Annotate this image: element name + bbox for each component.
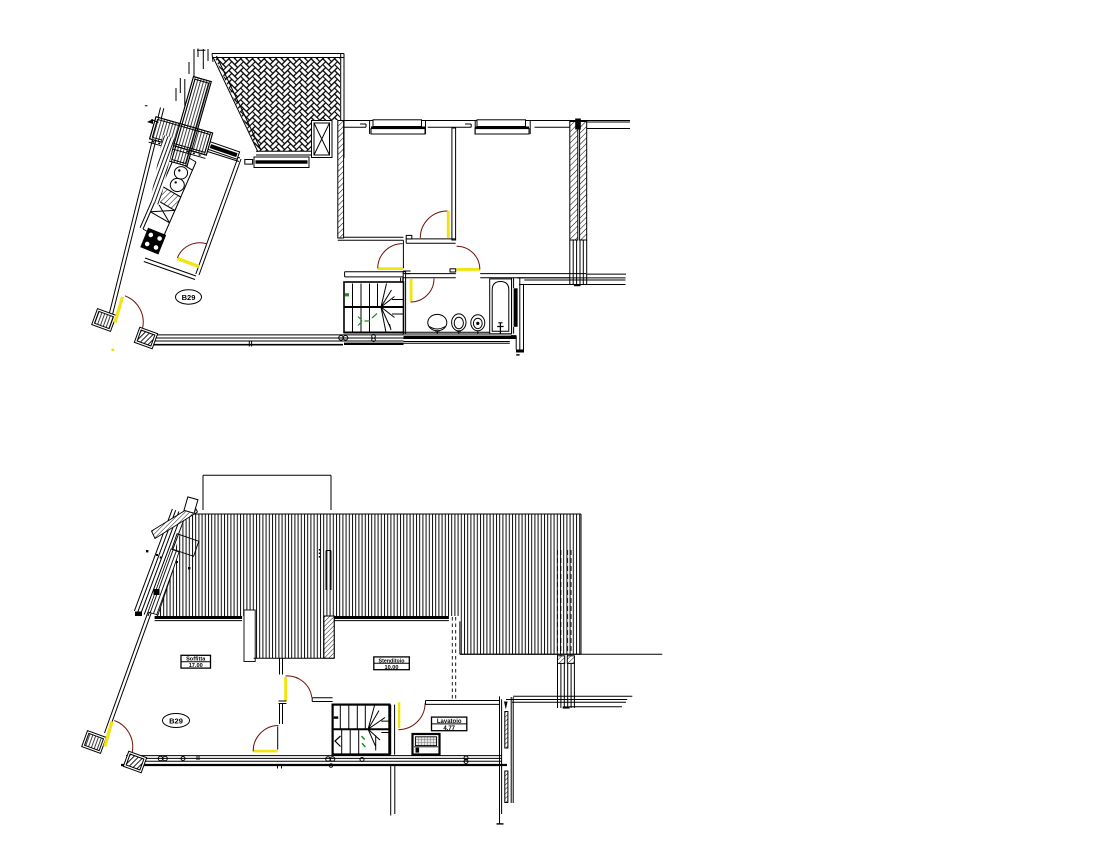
svg-text:17.00: 17.00 (189, 663, 203, 669)
svg-text:B29: B29 (182, 293, 196, 302)
svg-text:Stenditoio: Stenditoio (379, 658, 406, 664)
svg-text:10.00: 10.00 (385, 665, 399, 671)
svg-text:Soffitta: Soffitta (186, 657, 206, 663)
svg-text:4.77: 4.77 (443, 726, 455, 732)
svg-text:Lavatoio: Lavatoio (437, 719, 462, 725)
svg-text:B29: B29 (169, 717, 183, 726)
